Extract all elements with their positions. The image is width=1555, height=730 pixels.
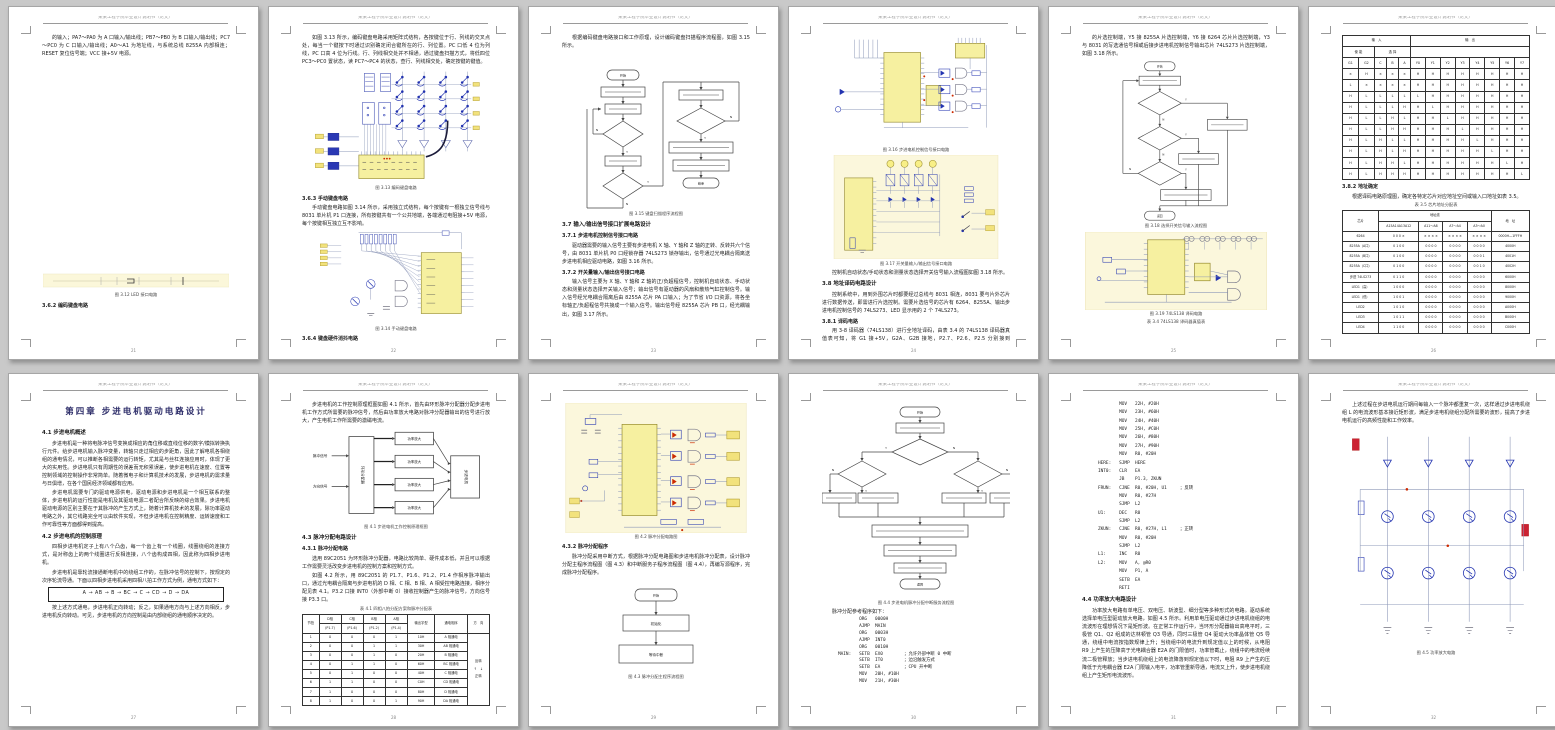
table-header-cell: Y5 <box>1485 58 1500 69</box>
crop-mark <box>1276 339 1286 347</box>
table-cell: 0 <box>363 633 385 642</box>
table-header-cell: A <box>1399 58 1411 69</box>
data-table: 芯片地址线地 址A15A14A13A12A11～A8A7～A4A3～A06264… <box>1342 210 1530 333</box>
table-cell: 0 0 0 0 <box>1419 292 1443 302</box>
table-row: 8255A（B口）0 1 0 00 0 0 00 0 0 00 0 0 1400… <box>1343 252 1530 262</box>
table-cell: L <box>1399 158 1411 169</box>
table-header-cell: C相 <box>341 615 363 624</box>
table-cell: B 相通电 <box>435 651 467 660</box>
table-row: HLHHLHHHHHHLH <box>1343 158 1530 169</box>
figure-caption: 表 3.4 74LS138 译码器真值表 <box>1082 319 1270 326</box>
table-cell: 0 0 0 1 <box>1467 252 1491 262</box>
table-cell: 8255A（C口） <box>1343 262 1379 272</box>
table-header-cell: B相 <box>363 615 385 624</box>
crop-mark <box>496 393 506 401</box>
crop-mark <box>1276 706 1286 714</box>
table-cell: 1 <box>363 660 385 669</box>
table-cell: LED4 <box>1343 323 1379 333</box>
table-cell: H <box>1374 158 1386 169</box>
page-content: 步进电机的工作控制原理框图如图 4.1 所示，首先由环形脉冲分配器分配步进电机工… <box>302 401 490 711</box>
table-cell: × <box>1386 69 1398 80</box>
table-cell: H <box>1515 102 1530 113</box>
figure-dec <box>1082 232 1270 310</box>
page-content: 输 入输 出使 能选 择G1G2CBAY0Y1Y2Y3Y4Y5Y6Y7×H×××… <box>1342 34 1530 344</box>
page-29[interactable]: 某某工程学院毕业设计说明书（论文）图 4.2 脉冲分配电路图4.3.2 脉冲分配… <box>528 373 779 727</box>
table-cell: H <box>1440 135 1455 146</box>
flow-label: Y <box>647 180 649 184</box>
crop-mark <box>21 706 31 714</box>
table-cell: H <box>1343 158 1359 169</box>
table-cell: H <box>1500 147 1515 158</box>
crop-mark <box>1016 706 1026 714</box>
table-cell: L <box>1374 102 1386 113</box>
table-row: LED1（低）1 0 0 10 0 0 00 0 0 00 0 0 09000H <box>1343 292 1530 302</box>
table-header-cell: Y3 <box>1455 58 1470 69</box>
table-cell: 0 0 0 0 <box>1467 303 1491 313</box>
table-header-cell: Y6 <box>1500 58 1515 69</box>
paragraph: 根据译码电路原理图，确定各特定芯片对应地址空间或输入口地址如表 3.5。 <box>1342 193 1530 201</box>
paragraph: 根据编码键盘电路接口和工作原理，设计编码键盘扫描程序流程图，如图 3.15 所示… <box>562 34 750 50</box>
table-row: HLHLLHHHHLHHH <box>1343 135 1530 146</box>
crop-mark <box>1321 339 1331 347</box>
table-row: 61100C0HCD 相通电 <box>303 679 490 688</box>
table-header-cell: Y1 <box>1425 58 1440 69</box>
table-row: 8255A（A口）0 1 0 00 0 0 00 0 0 00 0 0 0400… <box>1343 241 1530 251</box>
page-22[interactable]: 某某工程学院毕业设计说明书（论文）如图 3.13 所示，编码键盘电路采用矩阵式结… <box>268 6 519 360</box>
table-cell: H <box>1470 102 1485 113</box>
table-cell: H <box>1399 102 1411 113</box>
table-cell: C0H <box>407 679 435 688</box>
crop-mark <box>1536 393 1546 401</box>
running-header: 某某工程学院毕业设计说明书（论文） <box>303 383 488 391</box>
table-cell: 6264 <box>1343 231 1379 241</box>
table-cell: L <box>1386 147 1398 158</box>
page-content: 的片选控制端，Y5 接 8255A 片选控制端，Y6 接 6264 芯片片选控制… <box>1082 34 1270 344</box>
table-cell: 0 0 0 0 <box>1443 282 1467 292</box>
table-cell: 80H <box>407 688 435 697</box>
table-cell: H <box>1343 169 1359 180</box>
table-header-cell: (P1.6) <box>341 624 363 633</box>
table-header-cell: C <box>1374 58 1386 69</box>
table-cell: H <box>1386 124 1398 135</box>
flow-label: 功率放大 <box>407 505 421 510</box>
flow-label: 功率放大 <box>407 436 421 441</box>
table-row: 5010040HC 相通电 <box>303 669 490 678</box>
table-cell: 1 <box>363 651 385 660</box>
flow-label: 步进电机 <box>464 469 469 484</box>
section-heading: 4.2 步进电机的控制原理 <box>42 533 230 542</box>
subsection-heading: 3.6.3 手动键盘电路 <box>302 195 490 203</box>
table-cell: H <box>1440 169 1455 180</box>
table-row: 1000110HA 相通电反转↑ ↓正转 <box>303 633 490 642</box>
figure-kb <box>302 68 490 184</box>
table-cell: 0 0 0 0 <box>1419 313 1443 323</box>
flow-label: 返回 <box>1157 214 1163 218</box>
table-cell: 0000H—1FFFH <box>1491 231 1529 241</box>
page-24[interactable]: 某某工程学院毕业设计说明书（论文）图 3.16 步进电机控制信号接口电路图 3.… <box>788 6 1039 360</box>
table-cell: 0 <box>319 669 341 678</box>
table-cell: H <box>1411 135 1426 146</box>
table-cell: L <box>1399 135 1411 146</box>
table-cell: 0 <box>341 697 363 706</box>
page-number: 25 <box>1049 348 1298 353</box>
table-cell: H <box>1374 169 1386 180</box>
table-cell: 10H <box>407 633 435 642</box>
table-cell: 0 0 1 0 <box>1467 262 1491 272</box>
crop-mark <box>541 26 551 34</box>
section-heading: 4.1 步进电机概述 <box>42 429 230 438</box>
table-cell: H <box>1386 158 1398 169</box>
table-row: LED41 1 0 00 0 0 00 0 0 00 0 0 0C000H <box>1343 323 1530 333</box>
flow-label: N <box>1162 152 1164 156</box>
page-content: 上述过程在步进电机运行期间每输入一个脉冲都重复一次，这样通过步进电机绕组 L 的… <box>1342 401 1530 711</box>
flow-label: Y <box>626 150 628 154</box>
figure-ctrl <box>822 36 1010 146</box>
paragraph: 驱动器需要的输入信号主要有步进电机 X 轴、Y 轴和 Z 轴的正转、反转共六个信… <box>562 242 750 266</box>
table-cell: L <box>1440 113 1455 124</box>
table-cell: 0 <box>385 669 407 678</box>
table-cell: 0 <box>385 679 407 688</box>
subsection-heading: 3.6.4 键盘硬件消抖电路 <box>302 335 490 343</box>
table-cell: H <box>1515 69 1530 80</box>
table-cell: × <box>1399 80 1411 91</box>
table-cell: H <box>1440 80 1455 91</box>
table-row: 3001020HB 相通电 <box>303 651 490 660</box>
table-header-cell: A相 <box>385 615 407 624</box>
paragraph: 如图 3.13 所示，编码键盘电路采用矩阵式结构，各按键位于行、列线的交叉点处，… <box>302 34 490 66</box>
table-cell: H <box>1455 80 1470 91</box>
table-cell: L <box>1358 147 1374 158</box>
table-row: LED21 0 1 00 0 0 00 0 0 00 0 0 0A000H <box>1343 303 1530 313</box>
figure-flowA: 开始NYYNNY结束 <box>562 52 750 210</box>
table-row: LED31 0 1 10 0 0 00 0 0 00 0 0 0B000H <box>1343 313 1530 323</box>
running-header: 某某工程学院毕业设计说明书（论文） <box>303 16 488 24</box>
page-21[interactable]: 某某工程学院毕业设计说明书（论文）的输入；PA7～PA0 为 A 口输入/输出线… <box>8 6 259 360</box>
crop-mark <box>496 339 506 347</box>
page-30[interactable]: 某某工程学院毕业设计说明书（论文）开始YNNYYN返回图 4.4 步进电机脉冲分… <box>788 373 1039 727</box>
table-header-cell: 输出字型 <box>407 615 435 633</box>
table-row: 2001130HAB 相通电 <box>303 642 490 651</box>
table-cell: 0 <box>363 679 385 688</box>
section-heading: 4.3 脉冲分配电路设计 <box>302 534 490 543</box>
table-cell: L <box>1386 91 1398 102</box>
table-cell: H <box>1343 147 1359 158</box>
table-cell: 4 <box>303 660 320 669</box>
table-cell: H <box>1411 80 1426 91</box>
table-cell: H <box>1485 158 1500 169</box>
figure-caption: 图 3.19 74LS138 译码电路 <box>1082 311 1270 318</box>
page-number: 32 <box>1309 715 1555 720</box>
flow-label: Y <box>865 489 867 493</box>
page-number: 24 <box>789 348 1038 353</box>
table-header-cell <box>1411 47 1530 58</box>
flow-label: 方向信号 <box>313 483 328 488</box>
table-row: HLLHHHHHLHHHH <box>1343 124 1530 135</box>
table-cell: 8000H <box>1491 282 1529 292</box>
table-cell: H <box>1500 102 1515 113</box>
table-cell: H <box>1440 69 1455 80</box>
code-line: MOV R0, #27H <box>1098 493 1270 501</box>
subsection-heading: 3.8.1 译码电路 <box>822 318 1010 326</box>
code-listing: MOV 22H, #20H MOV 23H, #60H MOV 24H, #40… <box>1098 401 1270 593</box>
table-cell: 0 0 0 0 <box>1419 303 1443 313</box>
table-cell: L <box>1425 102 1440 113</box>
table-cell: 6000H <box>1491 272 1529 282</box>
table-row: 7100080HD 相通电 <box>303 688 490 697</box>
code-listing: ORG 0000H AJMP MAIN ORG 0003H AJMP INT0 … <box>838 617 1010 685</box>
table-header-cell: 地 址 <box>1491 211 1529 231</box>
code-line: JB P1.3, ZKUN <box>1098 476 1270 484</box>
table-header-cell: 输 入 <box>1343 36 1411 47</box>
flow-label: Y <box>885 446 887 450</box>
code-line: AJMP INT0 <box>838 638 1010 645</box>
code-line: MOV 24H, #40H <box>1098 418 1270 426</box>
table-cell: 1 <box>341 660 363 669</box>
page-content: MOV 22H, #20H MOV 23H, #60H MOV 24H, #40… <box>1082 401 1270 711</box>
table-header-cell: A11～A8 <box>1419 221 1443 231</box>
table-cell: H <box>1440 124 1455 135</box>
crop-mark <box>281 393 291 401</box>
figure-caption: 图 4.1 步进电机工作控制原理框图 <box>302 524 490 531</box>
figure-caption: 图 3.12 LED 接口电路 <box>42 292 230 299</box>
page-content: 开始YNNYYN返回图 4.4 步进电机脉冲分配中断服务流程图脉冲分配参考程序如… <box>822 401 1010 711</box>
table-cell: 0 0 0 0 <box>1443 262 1467 272</box>
crop-mark <box>541 339 551 347</box>
table-cell: H <box>1515 80 1530 91</box>
table-cell: H <box>1425 91 1440 102</box>
page-content: 图 3.16 步进电机控制信号接口电路图 3.17 开关量输入/输出信号接口电路… <box>822 34 1010 344</box>
table-cell: H <box>1485 102 1500 113</box>
paragraph: 上述过程在步进电机运行期间每输入一个脉冲都重复一次，这样通过步进电机绕组 L 的… <box>1342 401 1530 425</box>
table-cell: H <box>1485 135 1500 146</box>
paragraph: 按上述方式通电，步进电机正向转动；反之，如果通电方向与上述方向相反，步进电机反向… <box>42 604 230 620</box>
table-row: LED1（高）1 0 0 00 0 0 00 0 0 00 0 0 08000H <box>1343 282 1530 292</box>
table-cell: × <box>1386 80 1398 91</box>
figure-caption: 图 4.5 功率放大电路 <box>1342 650 1530 657</box>
table-row: 8255A（C口）0 1 0 00 0 0 00 0 0 00 0 1 0400… <box>1343 262 1530 272</box>
table-cell: L <box>1399 113 1411 124</box>
table-cell: 0 1 0 0 <box>1379 241 1419 251</box>
figure-caption: 图 3.14 手动键盘电路 <box>302 326 490 333</box>
table-cell: L <box>1374 91 1386 102</box>
code-line: MOV P1, A <box>1098 568 1270 576</box>
table-cell: H <box>1411 158 1426 169</box>
running-header: 某某工程学院毕业设计说明书（论文） <box>823 16 1008 24</box>
page-31[interactable]: 某某工程学院毕业设计说明书（论文） MOV 22H, #20H MOV 23H,… <box>1048 373 1299 727</box>
table-header-cell: 通电相序 <box>435 615 467 633</box>
figure-flowD: 开始YNNYYN返回 <box>822 403 1010 599</box>
page-28[interactable]: 某某工程学院毕业设计说明书（论文）步进电机的工作控制原理框图如图 4.1 所示，… <box>268 373 519 727</box>
page-content: 的输入；PA7～PA0 为 A 口输入/输出线；PB7～PB0 为 B 口输入/… <box>42 34 230 344</box>
figure-caption: 图 4.4 步进电机脉冲分配中断服务流程图 <box>822 600 1010 607</box>
table-cell: L <box>1358 102 1374 113</box>
table-cell: A 相通电 <box>435 633 467 642</box>
table-cell: 1 <box>319 688 341 697</box>
figure-caption: 图 4.2 脉冲分配电路图 <box>562 534 750 541</box>
table-cell: 0 <box>319 651 341 660</box>
page-content: 第四章 步进电机驱动电路设计4.1 步进电机概述步进电机是一种将电脉冲信号变换成… <box>42 401 230 711</box>
table-cell: H <box>1485 69 1500 80</box>
table-cell: 0 0 0 0 <box>1443 272 1467 282</box>
flow-label: Y <box>704 136 706 140</box>
table-cell: 40H <box>407 669 435 678</box>
table-cell: 0 0 0 0 <box>1443 241 1467 251</box>
table-cell: H <box>1386 113 1398 124</box>
figure-io <box>822 155 1010 259</box>
table-cell: 0 0 0 0 <box>1467 282 1491 292</box>
table-cell: L <box>1500 158 1515 169</box>
crop-mark <box>756 26 766 34</box>
table-header-cell: 芯片 <box>1343 211 1379 231</box>
crop-mark <box>496 706 506 714</box>
figure-caption: 表 4.1 四相八拍分配方案和脉冲分配表 <box>302 606 490 613</box>
table-cell: H <box>1500 91 1515 102</box>
table-row: 62640 0 0 ×× × × ×× × × ×× × × ×0000H—1F… <box>1343 231 1530 241</box>
code-line: MOV 26H, #80H <box>1098 434 1270 442</box>
table-cell: H <box>1399 147 1411 158</box>
table-cell: 8255A（B口） <box>1343 252 1379 262</box>
table-cell: H <box>1425 135 1440 146</box>
table-cell: AB 相通电 <box>435 642 467 651</box>
paragraph: 的输入；PA7～PA0 为 A 口输入/输出线；PB7～PB0 为 B 口输入/… <box>42 34 230 58</box>
table-cell: H <box>1425 69 1440 80</box>
crop-mark <box>1536 26 1546 34</box>
table-cell: H <box>1425 169 1440 180</box>
flow-label: 功率放大 <box>407 459 421 464</box>
subsection-heading: 4.3.2 脉冲分配程序 <box>562 543 750 551</box>
figure-caption: 图 4.3 脉冲分配主程序流程图 <box>562 674 750 681</box>
table-cell: H <box>1500 69 1515 80</box>
table-header-cell: (P1.7) <box>319 624 341 633</box>
paragraph: 步进电机的工作控制原理框图如图 4.1 所示，首先由环形脉冲分配器分配步进电机工… <box>302 401 490 425</box>
crop-mark <box>21 339 31 347</box>
table-cell: 6 <box>303 679 320 688</box>
table-row: HLHHHHHHHHHHL <box>1343 169 1530 180</box>
table-cell: 0 0 0 0 <box>1419 323 1443 333</box>
table-cell: H <box>1399 169 1411 180</box>
crop-mark <box>801 393 811 401</box>
phase-sequence: A → AB → B → BC → C → CD → D → DA <box>48 587 224 602</box>
table-cell: 4001H <box>1491 252 1529 262</box>
table-header-cell: 地址线 <box>1379 211 1492 221</box>
table-cell: H <box>1500 124 1515 135</box>
spacer <box>42 59 230 269</box>
paragraph: 脉冲分配采用中断方式，根据脉冲分配电路图和步进电机脉冲分配表，设计脉冲分配主程序… <box>562 553 750 577</box>
table-cell: 0 <box>319 660 341 669</box>
table-cell: 1 <box>319 697 341 706</box>
table-cell: LED1（低） <box>1343 292 1379 302</box>
table-cell: L <box>1358 158 1374 169</box>
page-27[interactable]: 某某工程学院毕业设计说明书（论文）第四章 步进电机驱动电路设计4.1 步进电机概… <box>8 373 259 727</box>
code-line: MOV R0, #20H <box>1098 535 1270 543</box>
page-32[interactable]: 某某工程学院毕业设计说明书（论文）上述过程在步进电机运行期间每输入一个脉冲都重复… <box>1308 373 1555 727</box>
paragraph: 步进电机需要专门的驱动电源供电，驱动电源和步进电机是一个相互联系的整体，步进电机… <box>42 489 230 529</box>
running-header: 某某工程学院毕业设计说明书（论文） <box>1343 16 1528 24</box>
code-line: MOV 21H, #30H <box>838 679 1010 686</box>
table-cell: 0 0 0 0 <box>1467 323 1491 333</box>
figure-blockdiag: 脉冲信号方向信号环形分配器步进电机功率放大功率放大功率放大功率放大 <box>302 427 490 523</box>
table-row: L××××HHHHHHHH <box>1343 80 1530 91</box>
table-cell: 8255A（A口） <box>1343 241 1379 251</box>
crop-mark <box>1536 706 1546 714</box>
flow-label: N <box>832 468 834 472</box>
table-cell: 0 1 0 0 <box>1379 252 1419 262</box>
figure-caption: 图 3.13 编码键盘电路 <box>302 185 490 192</box>
table-cell: L <box>1515 169 1530 180</box>
table-cell: 8 <box>303 697 320 706</box>
table-row: HLLHLHHLHHHHH <box>1343 113 1530 124</box>
table-cell: 1 <box>363 642 385 651</box>
table-cell: 0 <box>385 651 407 660</box>
crop-mark <box>1536 339 1546 347</box>
paragraph: 用 3-8 译码器（74LS138）进行全地址译码，由表 3.4 的 74LS1… <box>822 327 1010 344</box>
section-heading: 3.8 地址译码电路设计 <box>822 280 1010 289</box>
crop-mark <box>236 393 246 401</box>
page-number: 22 <box>269 348 518 353</box>
page-23[interactable]: 某某工程学院毕业设计说明书（论文）根据编码键盘电路接口和工作原理，设计编码键盘扫… <box>528 6 779 360</box>
flow-label: 脉冲信号 <box>313 453 328 458</box>
page-25[interactable]: 某某工程学院毕业设计说明书（论文）的片选控制端，Y5 接 8255A 片选控制端… <box>1048 6 1299 360</box>
running-header: 某某工程学院毕业设计说明书（论文） <box>1343 383 1528 391</box>
flow-label: 结束 <box>698 180 704 185</box>
table-cell: 0 1 1 0 <box>1379 272 1419 282</box>
table-cell: H <box>1485 91 1500 102</box>
crop-mark <box>756 393 766 401</box>
table-cell: H <box>1411 102 1426 113</box>
table-cell: H <box>1500 113 1515 124</box>
table-header-cell: 方 向 <box>467 615 489 633</box>
page-26[interactable]: 某某工程学院毕业设计说明书（论文）输 入输 出使 能选 择G1G2CBAY0Y1… <box>1308 6 1555 360</box>
figure-caption: 图 3.18 选择开关信号输入流程图 <box>1082 223 1270 230</box>
table-header-cell: 节拍 <box>303 615 320 633</box>
table-cell: L <box>1358 135 1374 146</box>
table-cell: A000H <box>1491 303 1529 313</box>
table-cell: H <box>1399 124 1411 135</box>
table-cell: H <box>1411 169 1426 180</box>
crop-mark <box>281 339 291 347</box>
table-cell: 0 0 0 0 <box>1467 292 1491 302</box>
table-cell: H <box>1343 124 1359 135</box>
subsection-heading: 3.6.2 编码键盘电路 <box>42 302 230 310</box>
paragraph: 的片选控制端，Y5 接 8255A 片选控制端，Y6 接 6264 芯片片选控制… <box>1082 34 1270 58</box>
paragraph: 手动键盘电路如图 3.14 所示，采用独立式结构，每个按键有一根独立信号线与 8… <box>302 204 490 228</box>
table-cell: H <box>1425 147 1440 158</box>
table-cell: DA 相通电 <box>435 697 467 706</box>
paragraph: 脉冲分配参考程序如下： <box>822 608 1010 616</box>
table-cell: H <box>1425 113 1440 124</box>
table-cell: H <box>1411 124 1426 135</box>
crop-mark <box>1061 339 1071 347</box>
table-header-cell: 输 出 <box>1411 36 1530 47</box>
table-cell: H <box>1470 169 1485 180</box>
table-cell: 1 <box>341 669 363 678</box>
data-table: 节拍D相C相B相A相输出字型通电相序方 向(P1.7)(P1.6)(P1.2)(… <box>302 614 490 706</box>
crop-mark <box>1061 393 1071 401</box>
running-header: 某某工程学院毕业设计说明书（论文） <box>823 383 1008 391</box>
flow-label: Y <box>1185 132 1187 136</box>
subsection-heading: 4.3.1 脉冲分配电路 <box>302 545 490 553</box>
running-header: 某某工程学院毕业设计说明书（论文） <box>1083 16 1268 24</box>
table-header-cell: (P1.4) <box>385 624 407 633</box>
page-row: 某某工程学院毕业设计说明书（论文）第四章 步进电机驱动电路设计4.1 步进电机概… <box>8 373 1547 727</box>
table-cell: L <box>1399 91 1411 102</box>
flow-label: N <box>626 202 628 206</box>
code-line: MOV 22H, #20H <box>1098 401 1270 409</box>
table-cell: 0 <box>341 688 363 697</box>
flow-label: 返回 <box>917 581 923 586</box>
paragraph: 控制机自动状态/手动状态和测量状态选择开关信号输入流程图如图 3.18 所示。 <box>822 269 1010 277</box>
running-header: 某某工程学院毕业设计说明书（论文） <box>563 383 748 391</box>
